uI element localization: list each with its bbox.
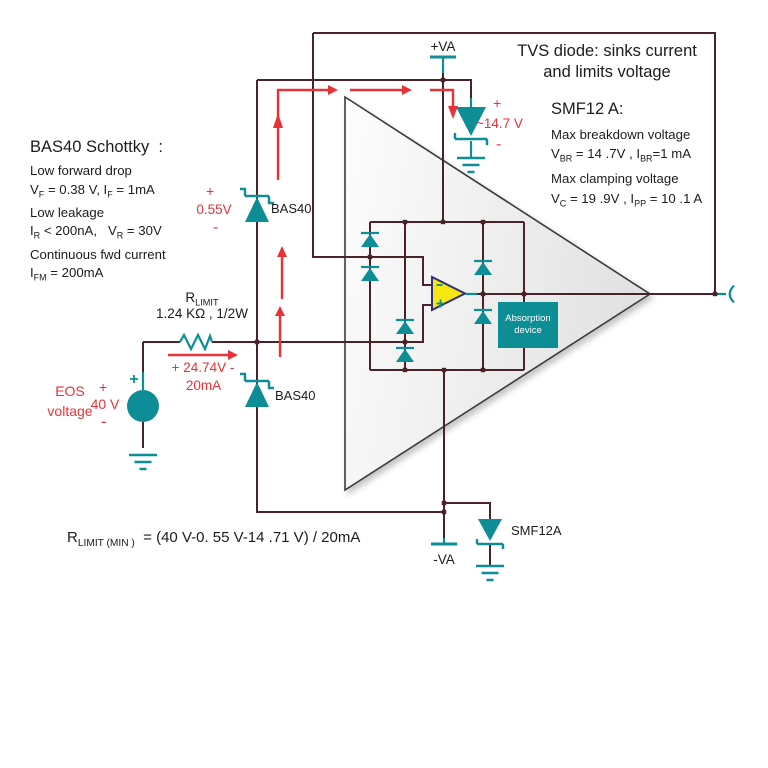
bas40-note-line: IFM = 200mA (30, 264, 166, 287)
smf12a-diode-icon (477, 519, 503, 549)
source-minus-label: - (101, 412, 107, 432)
resistor-value-label: 1.24 KΩ , 1/2W (146, 306, 258, 322)
bas40-drop-minus: - (213, 219, 218, 237)
tvs-spec-line: VC = 19 .9V , IPP = 10 .1 A (551, 189, 702, 214)
bas40-note: BAS40 Schottky : Low forward drop VF = 0… (30, 138, 166, 287)
absorption-line1: Absorption (505, 313, 550, 325)
resistor-icon (180, 335, 212, 349)
negative-supply-icon (431, 538, 457, 544)
absorption-device-box: Absorption device (498, 302, 558, 348)
ground-icon-tvs-top (457, 158, 485, 172)
positive-supply-label: +VA (421, 39, 465, 55)
bas40-note-line: Low forward drop (30, 162, 166, 181)
tvs-part-number: SMF12 A: (551, 100, 623, 119)
absorption-line2: device (514, 325, 541, 337)
tvs-specs: Max breakdown voltage VBR = 14 .7V , IBR… (551, 125, 702, 213)
output-connector-icon (718, 286, 734, 303)
tvs-title: TVS diode: sinks current and limits volt… (502, 41, 712, 82)
tvs-title-line1: TVS diode: sinks current (502, 41, 712, 62)
bas40-note-line: Low leakage (30, 204, 166, 223)
tvs-spec-line: Max clamping voltage (551, 169, 702, 188)
schematic-drawing (0, 0, 768, 768)
tvs-spec-line: VBR = 14 .7V , IBR=1 mA (551, 144, 702, 169)
eos-source-icon (127, 372, 159, 422)
source-value-label: 40 V (84, 396, 126, 412)
schematic-canvas: Absorption device +VA -VA BAS40 Schottky… (0, 0, 768, 768)
resistor-drop-label: + 24.74V - (163, 360, 243, 376)
ground-icon-source (129, 455, 157, 469)
bas40-note-line: VF = 0.38 V, IF = 1mA (30, 181, 166, 204)
bas40-drop-plus: + (206, 183, 214, 199)
tvs-drop-minus: - (496, 136, 501, 154)
bas40-note-line: Continuous fwd current (30, 246, 166, 265)
rlimit-formula: RLIMIT (MIN ) = (40 V-0. 55 V-14 .71 V) … (67, 529, 360, 550)
ground-icon-smf12a (476, 566, 504, 580)
tvs-title-line2: and limits voltage (502, 62, 712, 83)
source-plus-label: + (99, 379, 107, 395)
positive-supply-icon (430, 57, 456, 73)
bas40-lower-label: BAS40 (275, 389, 315, 404)
tvs-drop-value: ~14.7 V (476, 116, 523, 132)
negative-supply-label: -VA (421, 552, 467, 568)
tvs-spec-line: Max breakdown voltage (551, 125, 702, 144)
bas40-drop-value: 0.55V (189, 202, 239, 218)
bas40-upper-label: BAS40 (271, 202, 311, 217)
bas40-note-line: IR < 200nA, VR = 30V (30, 222, 166, 245)
resistor-current-label: 20mA (176, 378, 231, 394)
bas40-note-heading: BAS40 Schottky : (30, 138, 166, 157)
smf12a-label: SMF12A (511, 524, 562, 539)
tvs-drop-plus: + (493, 95, 501, 111)
